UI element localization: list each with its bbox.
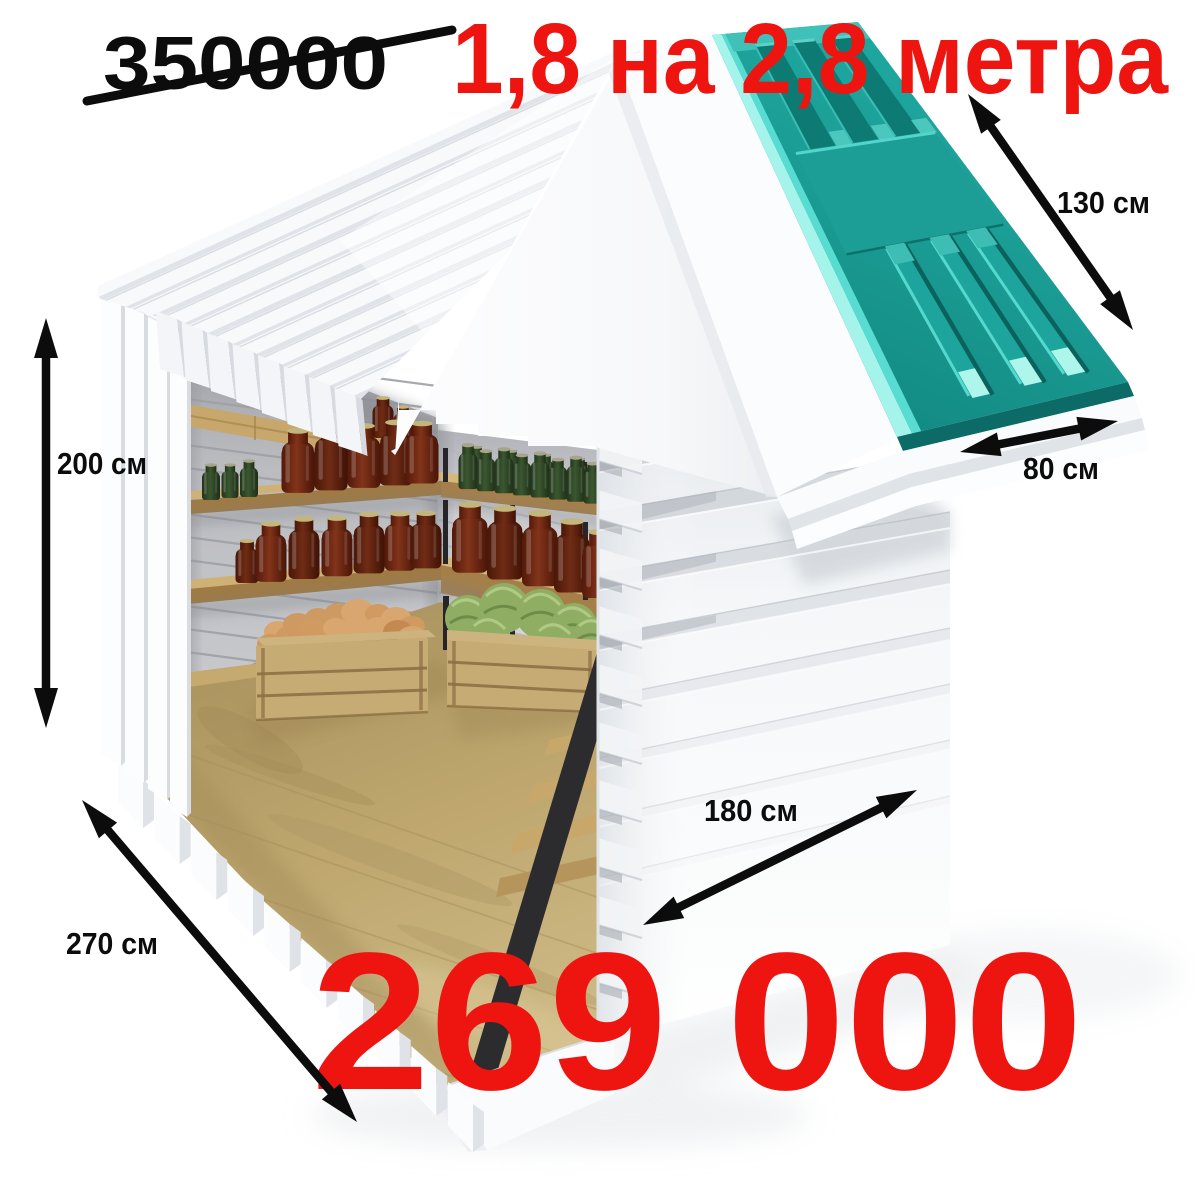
svg-text:270 см: 270 см (66, 926, 158, 961)
svg-text:130 см: 130 см (1057, 185, 1150, 220)
svg-text:200 см: 200 см (57, 446, 147, 481)
svg-text:1,8 на 2,8 метра: 1,8 на 2,8 метра (452, 3, 1169, 115)
svg-text:269 000: 269 000 (311, 912, 1083, 1131)
svg-text:180 см: 180 см (704, 793, 798, 828)
svg-text:80 см: 80 см (1023, 451, 1099, 486)
